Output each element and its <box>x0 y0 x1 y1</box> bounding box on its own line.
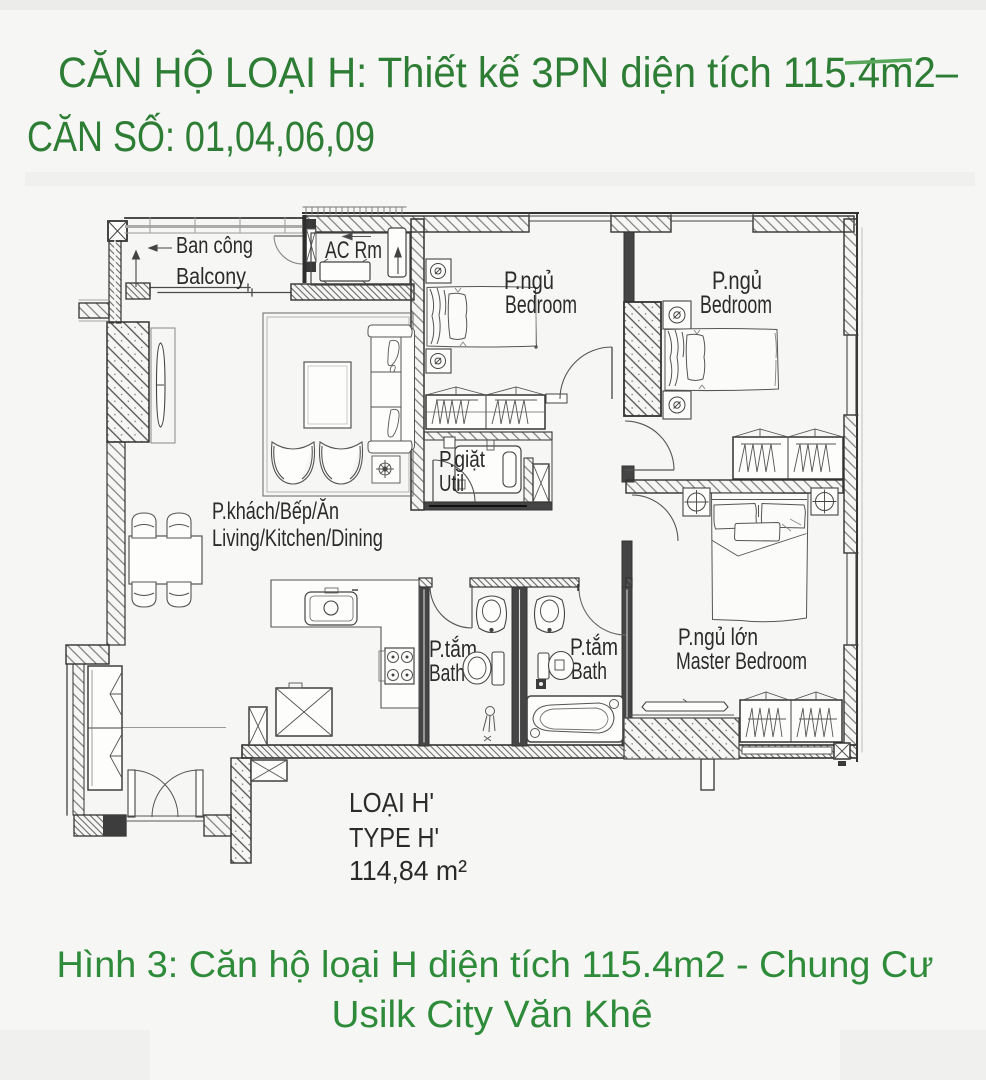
svg-text:P.khách/Bếp/Ăn: P.khách/Bếp/Ăn <box>212 498 339 525</box>
svg-text:CĂN HỘ LOẠI H: Thiết kế 3PN di: CĂN HỘ LOẠI H: Thiết kế 3PN diện tích 11… <box>58 49 958 97</box>
svg-text:P.giặt: P.giặt <box>439 446 485 472</box>
svg-text:Living/Kitchen/Dining: Living/Kitchen/Dining <box>212 525 383 552</box>
svg-text:AC Rm: AC Rm <box>325 237 382 264</box>
svg-text:TYPE H': TYPE H' <box>349 822 439 853</box>
svg-text:Bedroom: Bedroom <box>505 291 577 319</box>
svg-text:Bedroom: Bedroom <box>700 291 772 319</box>
svg-text:P.ngủ lớn: P.ngủ lớn <box>678 624 758 651</box>
svg-text:P.tắm: P.tắm <box>570 634 618 661</box>
svg-text:Master Bedroom: Master Bedroom <box>676 648 807 675</box>
svg-text:CĂN SỐ: 01,04,06,09: CĂN SỐ: 01,04,06,09 <box>27 112 375 161</box>
svg-text:Bath: Bath <box>571 658 607 685</box>
svg-text:LOẠI H': LOẠI H' <box>349 787 434 818</box>
svg-text:114,84 m²: 114,84 m² <box>349 855 467 886</box>
svg-text:Bath: Bath <box>429 660 465 687</box>
svg-text:Hình 3: Căn hộ loại H diện tíc: Hình 3: Căn hộ loại H diện tích 115.4m2 … <box>57 944 934 985</box>
svg-text:Usilk City Văn Khê: Usilk City Văn Khê <box>332 994 653 1036</box>
svg-text:Balcony: Balcony <box>176 263 246 289</box>
svg-text:Util: Util <box>439 470 464 496</box>
svg-text:Ban công: Ban công <box>176 232 253 258</box>
